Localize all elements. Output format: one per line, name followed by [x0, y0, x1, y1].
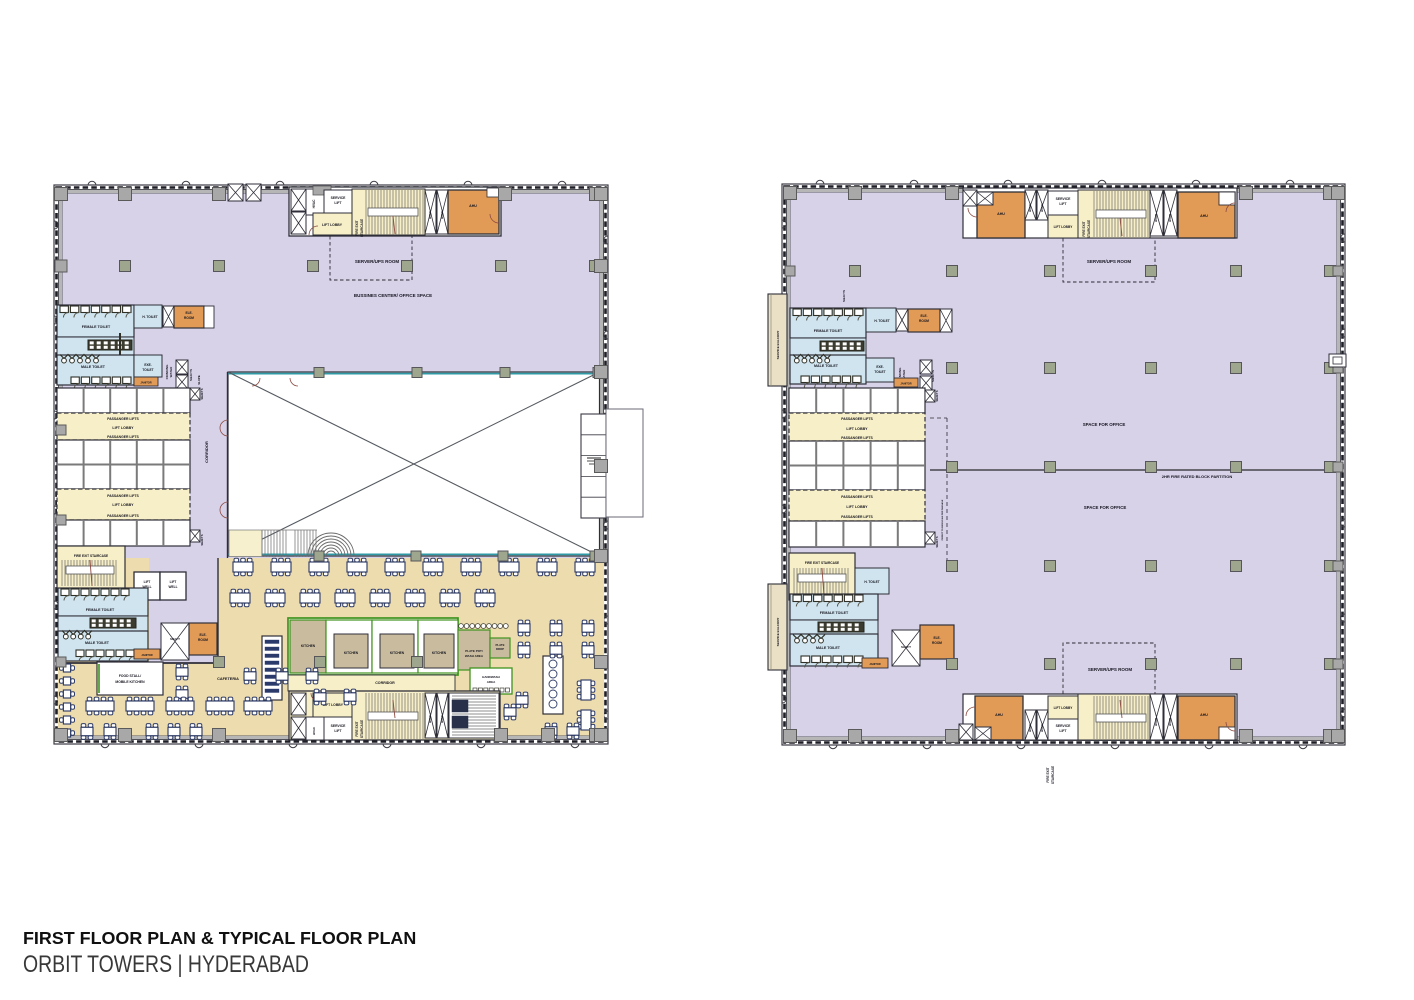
svg-text:PASSANGER LIFTS: PASSANGER LIFTS — [841, 436, 873, 440]
svg-text:LIFT LOBBY: LIFT LOBBY — [846, 427, 868, 431]
svg-text:SERVICE BALCONY: SERVICE BALCONY — [776, 331, 780, 360]
svg-text:HVAC: HVAC — [428, 714, 432, 723]
svg-text:ELE.: ELE. — [185, 311, 192, 315]
svg-text:HVAC: HVAC — [312, 199, 316, 208]
svg-text:H. TOILET: H. TOILET — [142, 315, 157, 319]
svg-text:DROP: DROP — [496, 647, 504, 651]
svg-text:LIFT LOBBY: LIFT LOBBY — [846, 505, 868, 509]
svg-text:CORRIDOR: CORRIDOR — [375, 681, 395, 685]
svg-text:SERVICE: SERVICE — [1056, 197, 1072, 201]
svg-text:2HR FIRE RATED BLOCK PARTITION: 2HR FIRE RATED BLOCK PARTITION — [1162, 474, 1233, 479]
svg-text:FIRE EXIT STAIRCASE: FIRE EXIT STAIRCASE — [74, 554, 108, 558]
svg-text:CORRIDOR: CORRIDOR — [204, 441, 209, 463]
svg-text:STAIRCASE: STAIRCASE — [360, 219, 364, 237]
svg-text:FEMALE TOILET: FEMALE TOILET — [814, 329, 843, 333]
svg-text:MALE TOILET: MALE TOILET — [81, 365, 106, 369]
svg-text:LIFT: LIFT — [1059, 202, 1067, 206]
svg-text:JANITOR: JANITOR — [900, 382, 911, 386]
svg-text:HVAC: HVAC — [1028, 203, 1032, 212]
svg-text:SERVICE: SERVICE — [331, 196, 347, 200]
svg-text:SHAFTS: SHAFTS — [842, 290, 846, 302]
svg-text:LIFT: LIFT — [144, 580, 151, 584]
svg-text:MALE TOILET: MALE TOILET — [816, 646, 841, 650]
svg-text:HANDWASH: HANDWASH — [482, 675, 500, 679]
svg-text:AHU: AHU — [469, 204, 477, 208]
svg-text:KITCHEN: KITCHEN — [390, 651, 405, 655]
svg-text:HVAC: HVAC — [1154, 213, 1158, 222]
svg-text:LIFT: LIFT — [334, 201, 342, 205]
svg-text:FIRE EXIT: FIRE EXIT — [1082, 221, 1086, 236]
svg-text:PLATE POT/: PLATE POT/ — [465, 649, 483, 653]
svg-text:LIFT LOBBY: LIFT LOBBY — [112, 426, 134, 430]
svg-text:ROOM: ROOM — [919, 319, 929, 323]
svg-text:EXE.: EXE. — [144, 363, 151, 367]
svg-text:SERVICE: SERVICE — [1056, 724, 1072, 728]
svg-text:JANITOR: JANITOR — [869, 662, 880, 666]
svg-text:SHAFTS: SHAFTS — [931, 370, 935, 382]
svg-text:KITCHEN: KITCHEN — [344, 651, 359, 655]
svg-text:SPACE FOR OFFICE: SPACE FOR OFFICE — [1083, 422, 1126, 427]
svg-text:HVAC: HVAC — [428, 210, 432, 219]
svg-text:LIFT: LIFT — [1059, 729, 1067, 733]
svg-text:WATER: WATER — [169, 366, 173, 377]
svg-text:HVAC: HVAC — [440, 714, 444, 723]
svg-text:STAIRCASE: STAIRCASE — [1051, 766, 1055, 784]
svg-text:LIFT LOBBY: LIFT LOBBY — [1054, 706, 1074, 710]
svg-text:PASSANGER LIFTS: PASSANGER LIFTS — [107, 494, 139, 498]
svg-text:ROOM: ROOM — [932, 641, 942, 645]
svg-text:SERVICE BALCONY: SERVICE BALCONY — [776, 618, 780, 647]
svg-text:SHAFTS: SHAFTS — [200, 388, 204, 399]
svg-text:PASSANGER LIFTS: PASSANGER LIFTS — [841, 495, 873, 499]
svg-text:PERMIT TO DESIGN AS PER PASSAG: PERMIT TO DESIGN AS PER PASSAGE — [941, 499, 944, 540]
svg-text:LIFT LOBBY: LIFT LOBBY — [112, 503, 134, 507]
svg-text:FIRE EXIT STAIRCASE: FIRE EXIT STAIRCASE — [805, 561, 839, 565]
svg-text:HVAC: HVAC — [1040, 723, 1044, 732]
svg-text:JANITOR: JANITOR — [140, 381, 151, 385]
svg-text:AHU: AHU — [995, 713, 1003, 717]
svg-text:HVAC: HVAC — [312, 726, 316, 735]
svg-text:MALE TOILET: MALE TOILET — [814, 364, 839, 368]
svg-text:AREA: AREA — [487, 680, 496, 684]
svg-text:LIFT LOBBY: LIFT LOBBY — [322, 223, 343, 227]
svg-text:KITCHEN: KITCHEN — [301, 644, 316, 648]
svg-text:FEMALE TOILET: FEMALE TOILET — [820, 611, 849, 615]
svg-text:HVAC: HVAC — [1154, 717, 1158, 726]
svg-text:SERVER/UPS ROOM: SERVER/UPS ROOM — [1088, 667, 1132, 672]
svg-text:HVAC: HVAC — [1168, 213, 1172, 222]
svg-text:TOILET: TOILET — [142, 368, 153, 372]
svg-text:ROOM: ROOM — [184, 316, 194, 320]
svg-text:SHAFTS: SHAFTS — [935, 536, 939, 547]
svg-text:PASSANGER LIFTS: PASSANGER LIFTS — [107, 417, 139, 421]
svg-text:PASSANGER LIFTS: PASSANGER LIFTS — [841, 515, 873, 519]
svg-text:SPACE FOR OFFICE: SPACE FOR OFFICE — [1084, 505, 1127, 510]
svg-text:H. TOILET: H. TOILET — [864, 580, 879, 584]
svg-text:FEMALE TOILET: FEMALE TOILET — [82, 325, 111, 329]
svg-text:FIRE EXIT: FIRE EXIT — [1046, 767, 1050, 782]
svg-text:WASH AREA: WASH AREA — [465, 654, 484, 658]
svg-text:LIFT: LIFT — [170, 580, 177, 584]
svg-text:SHAFTS: SHAFTS — [200, 534, 204, 545]
svg-text:SERVER/UPS ROOM: SERVER/UPS ROOM — [1087, 259, 1131, 264]
svg-text:TOILET: TOILET — [874, 370, 885, 374]
svg-text:ROOM: ROOM — [198, 638, 208, 642]
svg-text:EXE.: EXE. — [876, 365, 883, 369]
svg-text:SHAFTS: SHAFTS — [189, 369, 193, 381]
svg-text:SHAFT: SHAFT — [170, 637, 180, 641]
svg-text:FIRE EXIT: FIRE EXIT — [355, 721, 359, 736]
svg-text:AHU: AHU — [997, 212, 1005, 216]
svg-text:ELE.: ELE. — [920, 314, 927, 318]
svg-text:LIFT: LIFT — [334, 729, 342, 733]
svg-text:SHAFTS: SHAFTS — [935, 390, 939, 401]
svg-text:SHAFT: SHAFT — [901, 645, 911, 649]
svg-text:LIFT LOBBY: LIFT LOBBY — [1054, 225, 1074, 229]
svg-text:BUSSINES CENTER/ OFFICE SPACE: BUSSINES CENTER/ OFFICE SPACE — [354, 293, 432, 298]
svg-text:MOBILE KITCHEN: MOBILE KITCHEN — [115, 680, 145, 684]
svg-text:SLOPE: SLOPE — [197, 375, 201, 385]
svg-text:ELE.: ELE. — [199, 633, 206, 637]
svg-text:H. TOILET: H. TOILET — [874, 319, 889, 323]
svg-text:PASSANGER LIFTS: PASSANGER LIFTS — [107, 514, 139, 518]
svg-text:AHU: AHU — [1200, 713, 1208, 717]
svg-text:MALE TOILET: MALE TOILET — [85, 641, 110, 645]
svg-text:PASSANGER LIFTS: PASSANGER LIFTS — [841, 417, 873, 421]
svg-text:AHU: AHU — [1200, 214, 1208, 218]
svg-text:KITCHEN: KITCHEN — [432, 651, 447, 655]
svg-text:FOOD STALL/: FOOD STALL/ — [119, 674, 141, 678]
svg-text:HVAC: HVAC — [1040, 203, 1044, 212]
svg-text:CAFETERIA: CAFETERIA — [217, 677, 239, 681]
svg-text:HVAC: HVAC — [1028, 723, 1032, 732]
svg-text:WELL: WELL — [168, 585, 177, 589]
svg-text:JANITOR: JANITOR — [141, 653, 152, 657]
svg-text:PASSANGER LIFTS: PASSANGER LIFTS — [107, 435, 139, 439]
svg-text:SERVICE: SERVICE — [331, 724, 347, 728]
svg-text:STAIRCASE: STAIRCASE — [1087, 220, 1091, 238]
svg-text:FEMALE TOILET: FEMALE TOILET — [86, 608, 115, 612]
svg-text:ELE.: ELE. — [933, 636, 940, 640]
svg-text:HVAC: HVAC — [1168, 717, 1172, 726]
svg-text:STAIRCASE: STAIRCASE — [360, 720, 364, 738]
svg-text:HVAC: HVAC — [440, 210, 444, 219]
svg-text:SERVER/UPS ROOM: SERVER/UPS ROOM — [355, 259, 399, 264]
svg-text:FIRE EXIT: FIRE EXIT — [355, 220, 359, 235]
